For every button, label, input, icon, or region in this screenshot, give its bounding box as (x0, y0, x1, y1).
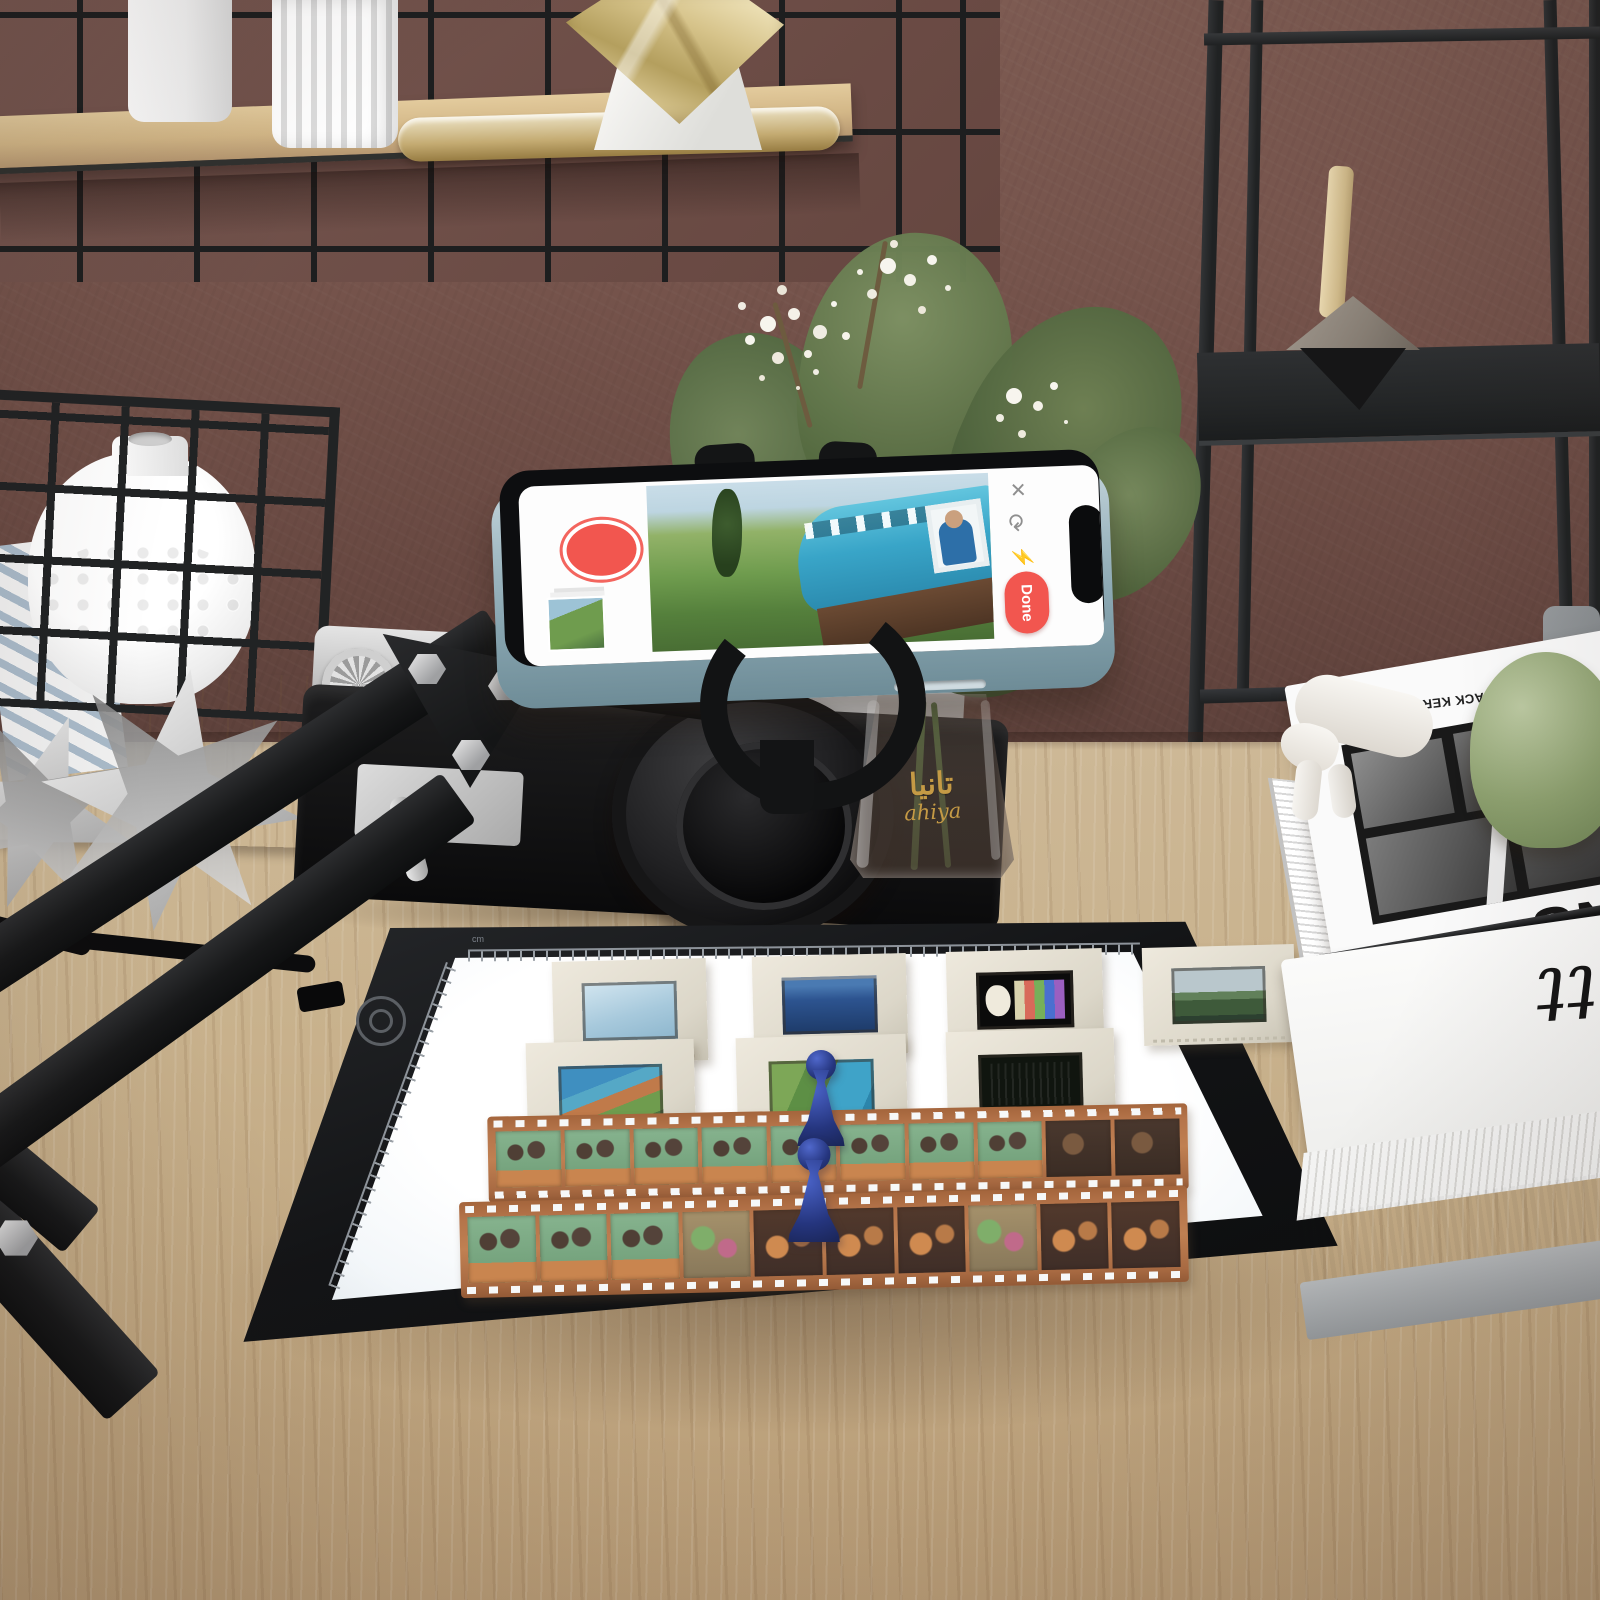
train-window (925, 498, 990, 573)
ribbed-vase (272, 0, 398, 148)
wire-basket (0, 389, 340, 723)
magnet-pawn (780, 1138, 848, 1242)
done-button[interactable]: Done (1004, 571, 1050, 635)
slide-image (582, 981, 679, 1042)
capture-thumbnail[interactable] (546, 596, 606, 652)
auto-capture-icon[interactable]: ⟳ (1004, 513, 1027, 532)
train-windows (804, 505, 935, 539)
tree (711, 489, 742, 577)
white-mug (128, 0, 232, 122)
white-blossoms (1006, 388, 1022, 404)
flash-icon[interactable]: ⚡ (1012, 545, 1032, 569)
record-button[interactable] (561, 518, 641, 581)
scene: cm (0, 0, 1600, 1600)
magnet-pawn (790, 1050, 852, 1146)
pawn-body (790, 1070, 852, 1146)
shelf-frame-shelf (1197, 343, 1600, 446)
test-pattern-shape (985, 984, 1011, 1017)
pawn-body (780, 1160, 848, 1242)
phone-notch (1068, 504, 1104, 603)
slide-image (1171, 966, 1267, 1024)
clamp-stem (760, 740, 814, 814)
slide-image (782, 975, 879, 1034)
white-blossoms (760, 316, 776, 332)
test-pattern-bars (1014, 979, 1065, 1020)
book-script-title: itt (1491, 943, 1600, 1044)
close-icon[interactable]: ✕ (1007, 481, 1028, 499)
power-button-icon (369, 1009, 393, 1033)
slide-inner (991, 1061, 1071, 1106)
done-label: Done (1018, 583, 1036, 621)
white-blossoms (880, 258, 896, 274)
slide-image (976, 970, 1074, 1030)
book-stack: itt (1264, 895, 1600, 1360)
ruler-unit-label: cm (472, 934, 484, 944)
